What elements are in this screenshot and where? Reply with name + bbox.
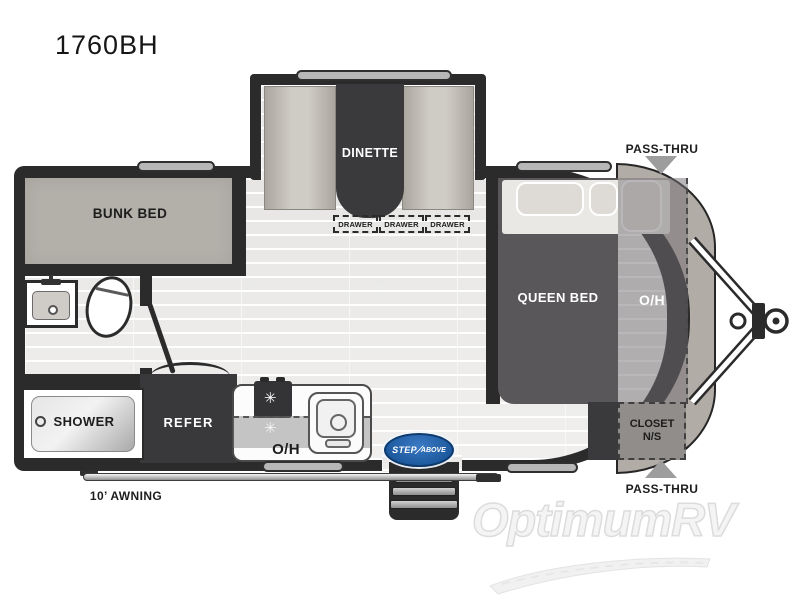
queen-bed-label: QUEEN BED <box>498 290 618 305</box>
drain-icon <box>48 305 58 315</box>
kitchen-overhead-label: O/H <box>256 441 316 458</box>
bedroom-window-icon <box>516 161 612 172</box>
pillow <box>589 182 618 216</box>
stove-burner-icon: ✳ <box>264 421 277 436</box>
bottom-right-window-icon <box>506 462 578 473</box>
pillow <box>516 182 584 216</box>
wardrobe-block <box>588 402 618 460</box>
wall-segment <box>140 274 152 306</box>
step-logo-word1: STEP <box>392 445 417 455</box>
drain-icon <box>330 414 347 431</box>
bunk-window-icon <box>137 161 215 172</box>
wall-segment <box>232 166 246 276</box>
step-tread <box>392 487 456 496</box>
faucet-icon <box>325 439 351 448</box>
toilet-seat-line <box>95 287 129 297</box>
drawer-label: DRAWER <box>430 220 465 229</box>
page-title: 1760BH <box>55 30 159 61</box>
closet: CLOSET N/S <box>618 402 686 460</box>
drawer-box: DRAWER <box>333 215 378 233</box>
floorplan-canvas: 1760BH DINETTE DRAWER DRAWER DRAWER BUNK… <box>0 0 800 600</box>
stove-burner-icon: ✳ <box>264 391 277 406</box>
step-logo-word2: ABOVE <box>421 447 446 454</box>
bunk-bed-area <box>25 178 232 266</box>
drawer-box: DRAWER <box>425 215 470 233</box>
awning-bar <box>83 473 499 481</box>
drawer-label: DRAWER <box>338 220 373 229</box>
kitchen-sink-icon <box>308 392 364 454</box>
step-tread <box>390 500 458 509</box>
dinette-bench-left <box>264 86 336 210</box>
shower-label: SHOWER <box>34 414 134 429</box>
entry-steps-icon <box>389 462 459 520</box>
pass-thru-arrow-up-icon <box>645 460 677 478</box>
closet-label-line2: N/S <box>643 431 661 444</box>
step-above-logo: STEP ⁄ ABOVE <box>384 433 454 467</box>
watermark-road-graphic <box>482 548 717 598</box>
stove-knob-icon <box>260 377 269 382</box>
drawer-label: DRAWER <box>384 220 419 229</box>
dinette-bench-right <box>402 86 474 210</box>
pass-thru-label-top: PASS-THRU <box>612 142 712 156</box>
front-overhead-label: O/H <box>620 292 684 308</box>
slideout-window-icon <box>296 70 452 81</box>
awning-end-cap <box>476 474 501 482</box>
awning-label: 10’ AWNING <box>70 489 182 503</box>
tongue-hitch-icon <box>686 228 798 414</box>
watermark-text: OptimumRV <box>472 492 800 547</box>
drawer-box: DRAWER <box>379 215 424 233</box>
closet-label-line1: CLOSET <box>630 418 675 431</box>
bunk-bed-label: BUNK BED <box>45 206 215 221</box>
faucet-icon <box>49 275 53 285</box>
pass-thru-arrow-down-icon <box>645 156 677 174</box>
stove-knob-icon <box>276 377 285 382</box>
front-overhead-cabinet-overlay <box>618 178 688 404</box>
dinette-label: DINETTE <box>336 146 404 160</box>
refrigerator-label: REFER <box>140 415 237 430</box>
bottom-left-window-icon <box>262 461 344 472</box>
bathroom-sink-icon <box>24 280 78 328</box>
